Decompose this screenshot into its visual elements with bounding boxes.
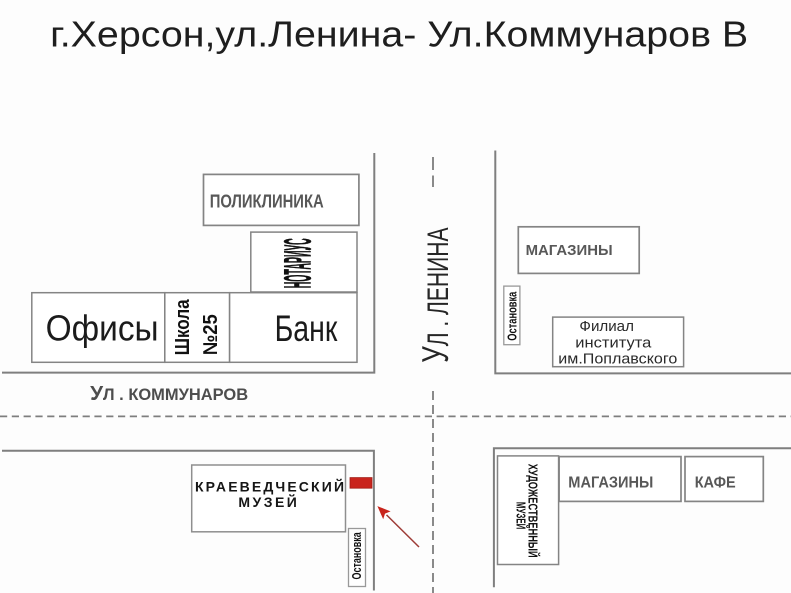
svg-text:МУЗЕЙ: МУЗЕЙ <box>514 502 529 529</box>
svg-text:МАГАЗИНЫ: МАГАЗИНЫ <box>526 242 613 259</box>
svg-text:КРАЕВЕДЧЕСКИЙ: КРАЕВЕДЧЕСКИЙ <box>195 478 344 495</box>
svg-text:Филиал: Филиал <box>579 318 634 335</box>
svg-text:МАГАЗИНЫ: МАГАЗИНЫ <box>568 475 653 492</box>
svg-text:УЛ . КОММУНАРОВ: УЛ . КОММУНАРОВ <box>90 382 248 405</box>
svg-text:Остановка: Остановка <box>350 531 364 579</box>
svg-text:КАФЕ: КАФЕ <box>695 475 736 492</box>
svg-text:УЛ . ЛЕНИНА: УЛ . ЛЕНИНА <box>415 227 456 362</box>
svg-text:Остановка: Остановка <box>506 291 520 341</box>
svg-text:Офисы: Офисы <box>46 308 159 349</box>
svg-text:Банк: Банк <box>275 307 338 349</box>
svg-text:Школа: Школа <box>172 299 194 356</box>
svg-text:им.Поплавского: им.Поплавского <box>558 351 677 368</box>
svg-text:ПОЛИКЛИНИКА: ПОЛИКЛИНИКА <box>210 192 324 212</box>
svg-text:института: института <box>575 335 652 352</box>
svg-text:№25: №25 <box>200 314 222 355</box>
svg-text:МУЗЕЙ: МУЗЕЙ <box>238 493 296 510</box>
svg-text:НОТАРИУС: НОТАРИУС <box>277 238 319 288</box>
svg-text:г.Херсон,ул.Ленина- Ул.Коммуна: г.Херсон,ул.Ленина- Ул.Коммунаров В <box>50 14 748 55</box>
